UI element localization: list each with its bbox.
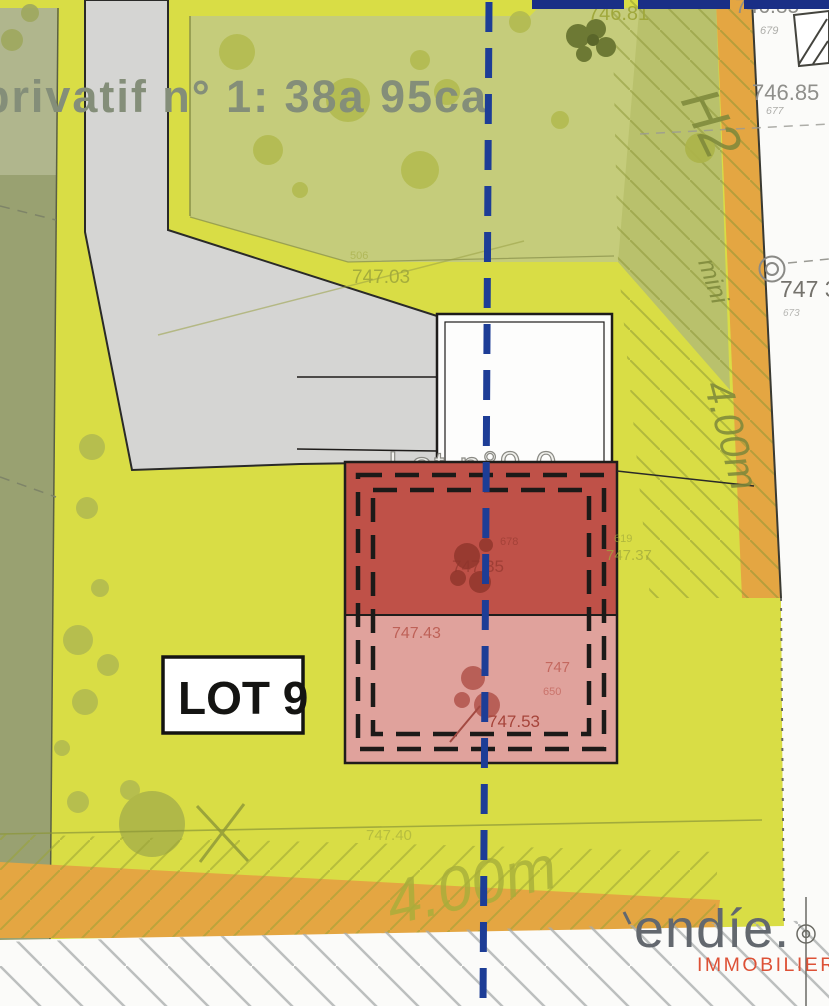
site-plan-scan: Lot n°9.0 678 747.35 747.43 747 650 747.… [0,0,829,1006]
footprint-lower-roof [345,615,617,763]
corner-building-symbol [794,11,829,66]
point-number-679: 679 [760,25,778,37]
point-number-619: 619 [614,533,632,545]
point-number-673: 673 [783,308,800,319]
site-plan-svg: Lot n°9.0 678 747.35 747.43 747 650 747.… [0,0,829,1006]
point-number-678: 678 [500,536,518,548]
elevation-747-right: 747 [545,659,570,676]
elevation-747-35: 747.35 [452,557,504,576]
elevation-747-43: 747.43 [392,625,441,642]
lot-label-text: LOT 9 [178,672,308,724]
elevation-747-53: 747.53 [488,712,540,731]
logo-brand-text: endíe. [634,899,790,959]
elevation-746-85: 746.85 [752,80,819,105]
bottom-setback-hatch [0,834,718,938]
point-number-650: 650 [543,686,561,698]
left-neighbour-olive [0,175,57,940]
lot-label-box: LOT 9 [163,657,308,733]
elevation-747-3: 747 3 [780,276,829,302]
private-area-label: privatif n° 1: 38a 95ca [0,71,487,122]
elevation-747-40: 747.40 [366,827,412,844]
point-number-506: 506 [350,250,368,262]
elevation-747-37: 747.37 [606,547,652,564]
point-number-677: 677 [766,105,785,117]
elevation-747-03: 747.03 [352,267,410,288]
logo-tagline-text: IMMOBILIER [697,954,829,976]
